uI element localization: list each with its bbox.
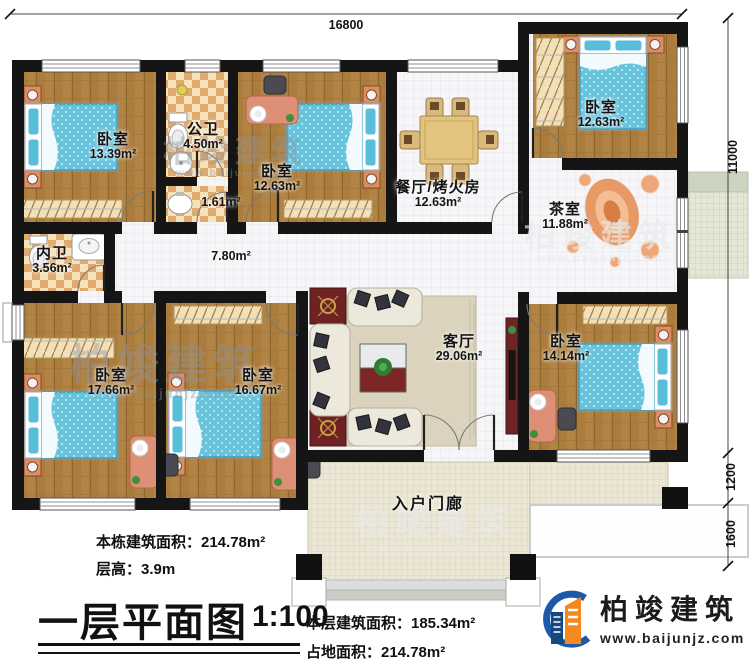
room-label-utility: 1.61m² [201, 196, 241, 210]
room-label-bedroom-top-right: 卧室12.63m² [578, 100, 625, 130]
room-label-hallway: 7.80m² [211, 250, 251, 264]
company-logo-icon [541, 584, 593, 662]
room-label-bedroom-bottom-mid: 卧室16.67m² [235, 368, 282, 398]
room-label-public-bathroom: 公卫4.50m² [183, 122, 223, 152]
company-name: 柏竣建筑 [600, 588, 740, 628]
sofa-set-icon [310, 288, 476, 446]
floor-height-text: 层高：3.9m [96, 558, 175, 579]
room-label-tea-room: 茶室11.88m² [542, 202, 588, 232]
room-label-entry-porch: 入户门廊 [392, 496, 464, 513]
tv-cabinet-icon [506, 318, 518, 434]
title-underline [38, 643, 300, 654]
room-label-bedroom-bottom-right: 卧室14.14m² [543, 334, 590, 364]
company-website: www.baijunjz.com [600, 630, 745, 646]
room-label-bedroom-bottom-left: 卧室17.66m² [88, 368, 135, 398]
dimension-width-top: 16800 [329, 18, 364, 32]
room-label-living-room: 客厅29.06m² [436, 334, 483, 364]
room-label-dining-fire-room: 餐厅/烤火房12.63m² [395, 180, 480, 210]
dimension-porch-1200: 1200 [724, 463, 738, 491]
dimension-height-right: 11000 [726, 140, 740, 174]
room-label-inner-bathroom: 内卫3.56m² [32, 246, 72, 276]
footprint-area-text: 占地面积：214.78m² [306, 641, 445, 662]
floor-area-text: 本层建筑面积：185.34m² [306, 612, 475, 633]
side-terrace-floor [688, 172, 748, 278]
dimension-porch-1600: 1600 [724, 520, 738, 548]
room-label-bedroom-top-middle: 卧室12.63m² [254, 164, 301, 194]
building-area-text: 本栋建筑面积：214.78m² [96, 531, 265, 552]
room-label-bedroom-top-left: 卧室13.39m² [90, 132, 137, 162]
plan-title: 一层平面图 [38, 590, 248, 648]
floor-plan-page: 柏竣建筑www.baijunjz.com 柏竣建筑www.baijunjz.co… [0, 0, 750, 665]
